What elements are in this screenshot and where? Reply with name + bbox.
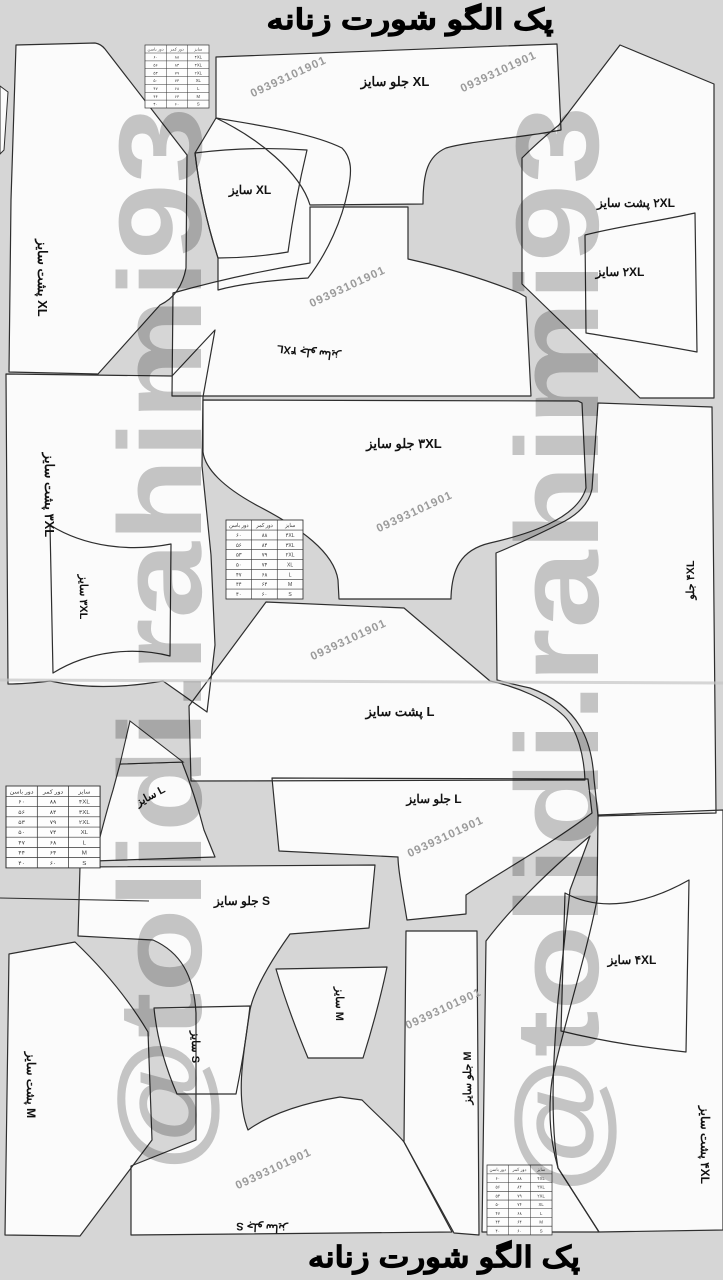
- svg-text:جلو سایز M: جلو سایز M: [462, 1051, 474, 1105]
- svg-text:جلو سایز XL: جلو سایز XL: [360, 74, 430, 90]
- svg-text:@tolidi.rahimi93: @tolidi.rahimi93: [95, 107, 227, 1172]
- svg-text:پشت سایز ‪۳XL‬: پشت سایز ‪۳XL‬: [41, 452, 57, 538]
- svg-text:سایز XL: سایز XL: [228, 183, 271, 198]
- svg-text:سایز M: سایز M: [333, 986, 345, 1021]
- svg-text:@tolidi.rahimi93: @tolidi.rahimi93: [492, 106, 624, 1194]
- svg-text:جلو سایز ‪۳XL‬: جلو سایز ‪۳XL‬: [365, 436, 442, 452]
- svg-text:پشت سایز ‪۴XL‬: پشت سایز ‪۴XL‬: [697, 1105, 712, 1184]
- svg-text:پشت سایز XL: پشت سایز XL: [34, 238, 50, 317]
- svg-text:جلو ‪۴XL‬: جلو ‪۴XL‬: [685, 560, 697, 600]
- svg-text:پک الگو شورت زنانه: پک الگو شورت زنانه: [308, 1240, 580, 1276]
- svg-text:جلو سایز L: جلو سایز L: [405, 792, 461, 807]
- svg-text:پشت سایز M: پشت سایز M: [23, 1051, 38, 1118]
- svg-text:پک الگو شورت زنانه: پک الگو شورت زنانه: [267, 3, 554, 37]
- svg-text:پشت سایز L: پشت سایز L: [365, 704, 435, 720]
- svg-text:سایز ‪۳XL‬: سایز ‪۳XL‬: [77, 574, 89, 620]
